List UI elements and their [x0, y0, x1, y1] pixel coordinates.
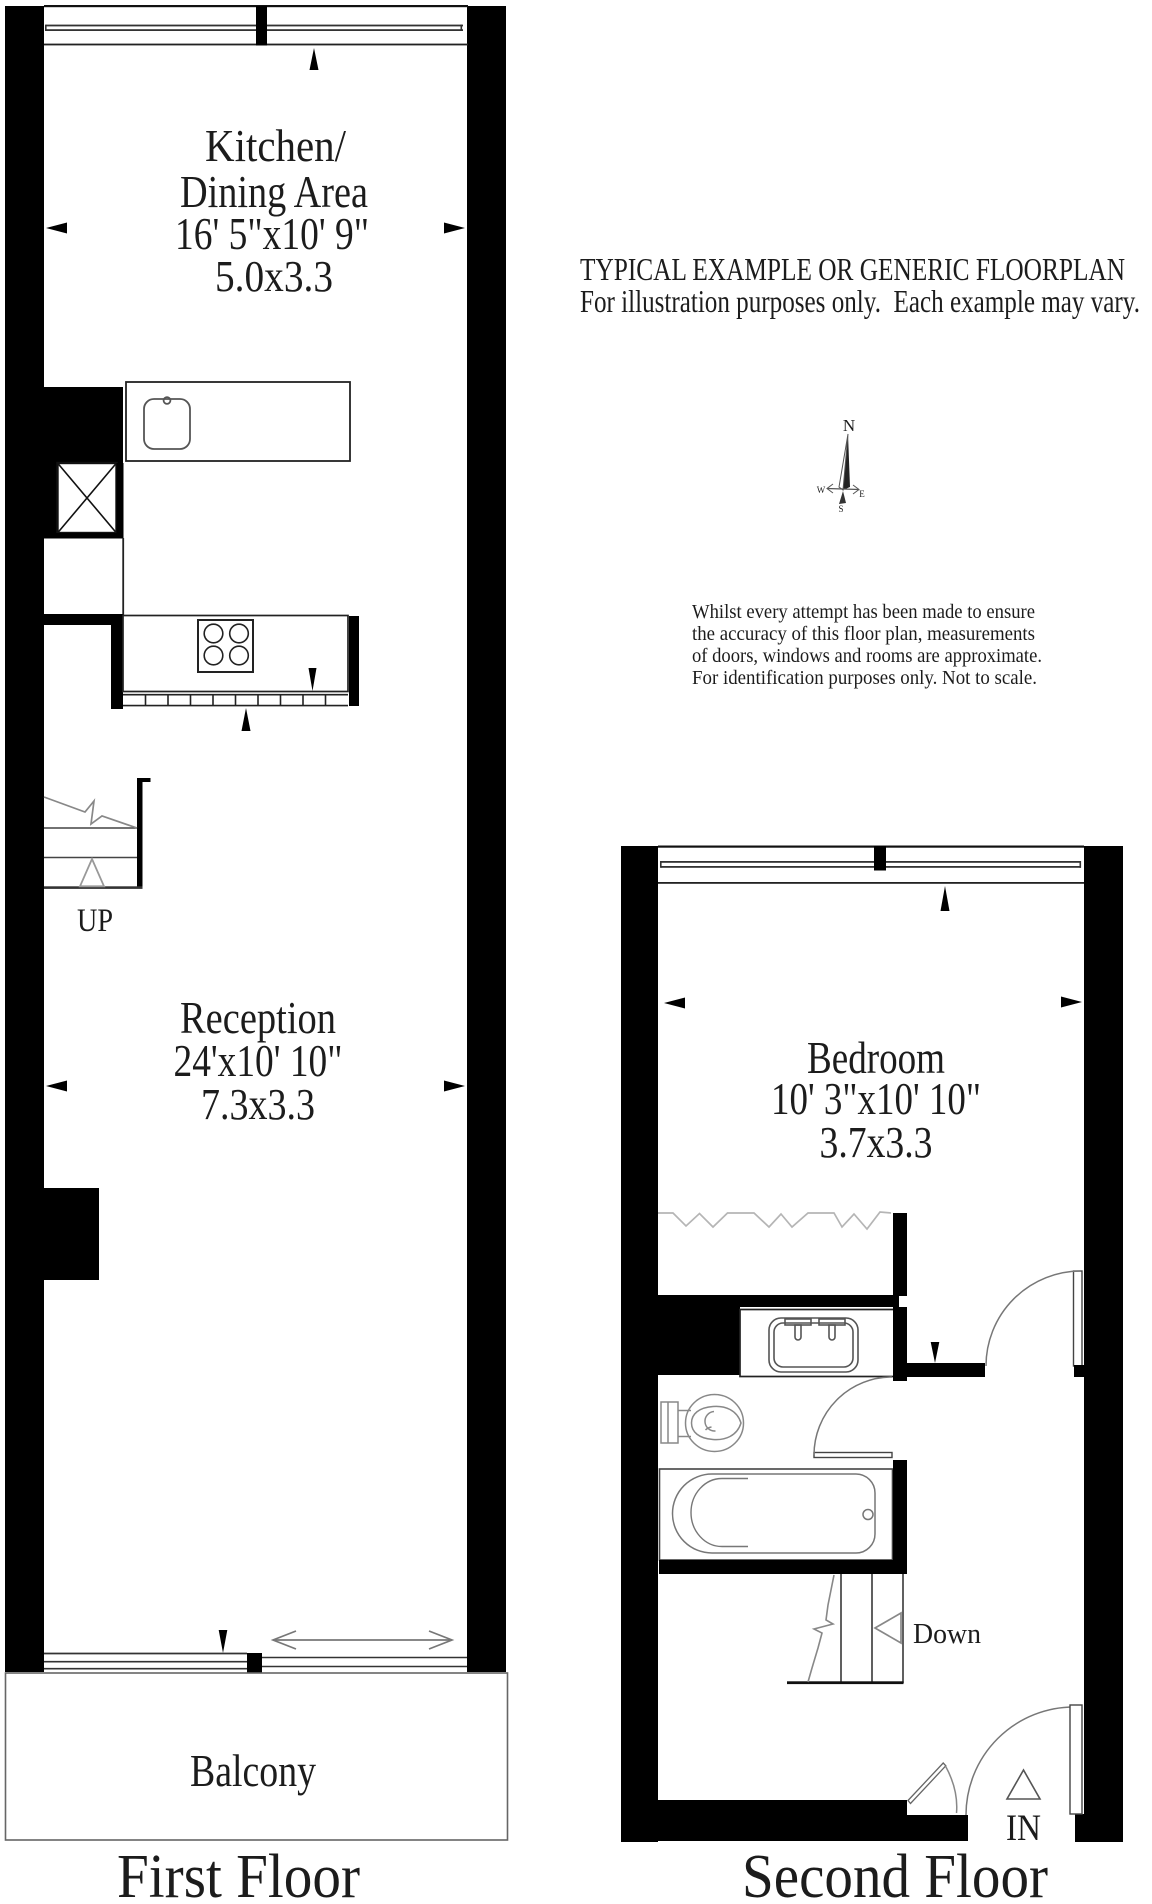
- svg-text:N: N: [843, 416, 855, 435]
- svg-text:Down: Down: [913, 1618, 981, 1650]
- svg-text:Second Floor: Second Floor: [742, 1843, 1048, 1904]
- svg-text:S: S: [838, 504, 843, 514]
- svg-text:3.7x3.3: 3.7x3.3: [820, 1118, 933, 1167]
- svg-text:24'x10' 10": 24'x10' 10": [174, 1035, 343, 1086]
- svg-text:Whilst every attempt has been: Whilst every attempt has been made to en…: [692, 602, 1035, 623]
- svg-text:W: W: [817, 485, 826, 495]
- svg-text:For identification purposes on: For identification purposes only. Not to…: [692, 668, 1037, 689]
- svg-text:the accuracy of this floor pla: the accuracy of this floor plan, measure…: [692, 624, 1035, 645]
- svg-text:5.0x3.3: 5.0x3.3: [215, 252, 333, 301]
- svg-text:10' 3"x10' 10": 10' 3"x10' 10": [771, 1073, 981, 1124]
- svg-text:E: E: [859, 489, 865, 499]
- svg-text:For illustration purposes only: For illustration purposes only. Each exa…: [580, 284, 1140, 319]
- svg-text:Balcony: Balcony: [190, 1746, 316, 1796]
- svg-text:First Floor: First Floor: [117, 1843, 360, 1904]
- svg-text:TYPICAL EXAMPLE OR GENERIC FLO: TYPICAL EXAMPLE OR GENERIC FLOORPLAN: [580, 252, 1125, 287]
- svg-text:of doors, windows and rooms ar: of doors, windows and rooms are approxim…: [692, 646, 1042, 667]
- svg-text:7.3x3.3: 7.3x3.3: [201, 1080, 315, 1129]
- svg-text:UP: UP: [77, 903, 113, 939]
- svg-text:Kitchen/: Kitchen/: [205, 120, 346, 171]
